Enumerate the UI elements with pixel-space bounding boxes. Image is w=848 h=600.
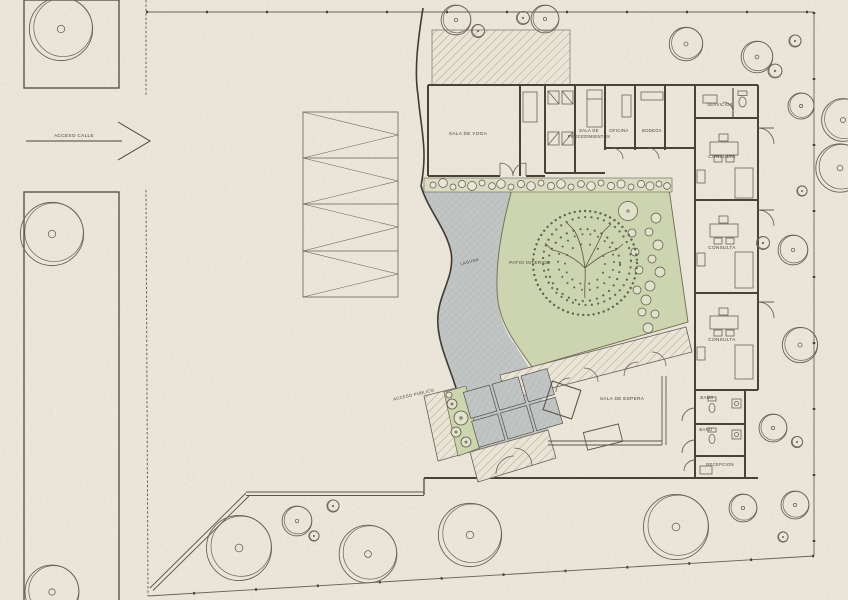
sala-yoga-label: SALA DE YOGA: [449, 131, 488, 136]
oficina-label: OFICINA: [609, 128, 628, 133]
consulta-2-label: CONSULTA: [708, 245, 736, 250]
sala-espera-label: SALA DE ESPERA: [600, 396, 645, 401]
paper-texture: [0, 0, 848, 600]
sala-procedimientos-label-1: SALA DE: [579, 128, 599, 133]
bano-1-label: BAÑO: [700, 395, 714, 400]
planting-strip-top: [424, 178, 672, 192]
bodega-label: BODEGA: [642, 128, 662, 133]
acceso-calle-label: ACCESO CALLE: [54, 133, 94, 138]
roof-canopy-hatch: [432, 30, 570, 85]
consulta-1-label: CONSULTA: [708, 154, 736, 159]
consulta-3-label: CONSULTA: [708, 337, 736, 342]
servicios-label: SERVICIOS: [707, 102, 733, 107]
sala-procedimientos-label-2: PROCEDIMIENTOS: [568, 134, 611, 139]
patio-interior-label: PATIO INTERIOR: [509, 260, 551, 265]
site-plan-drawing: ACCESO CALLE LAGUNA PATIO INTERIOR: [0, 0, 848, 600]
recepcion-label: RECEPCION: [706, 462, 734, 467]
site-plan: ACCESO CALLE LAGUNA PATIO INTERIOR: [0, 0, 848, 600]
bano-2-label: BAÑO: [699, 427, 713, 432]
